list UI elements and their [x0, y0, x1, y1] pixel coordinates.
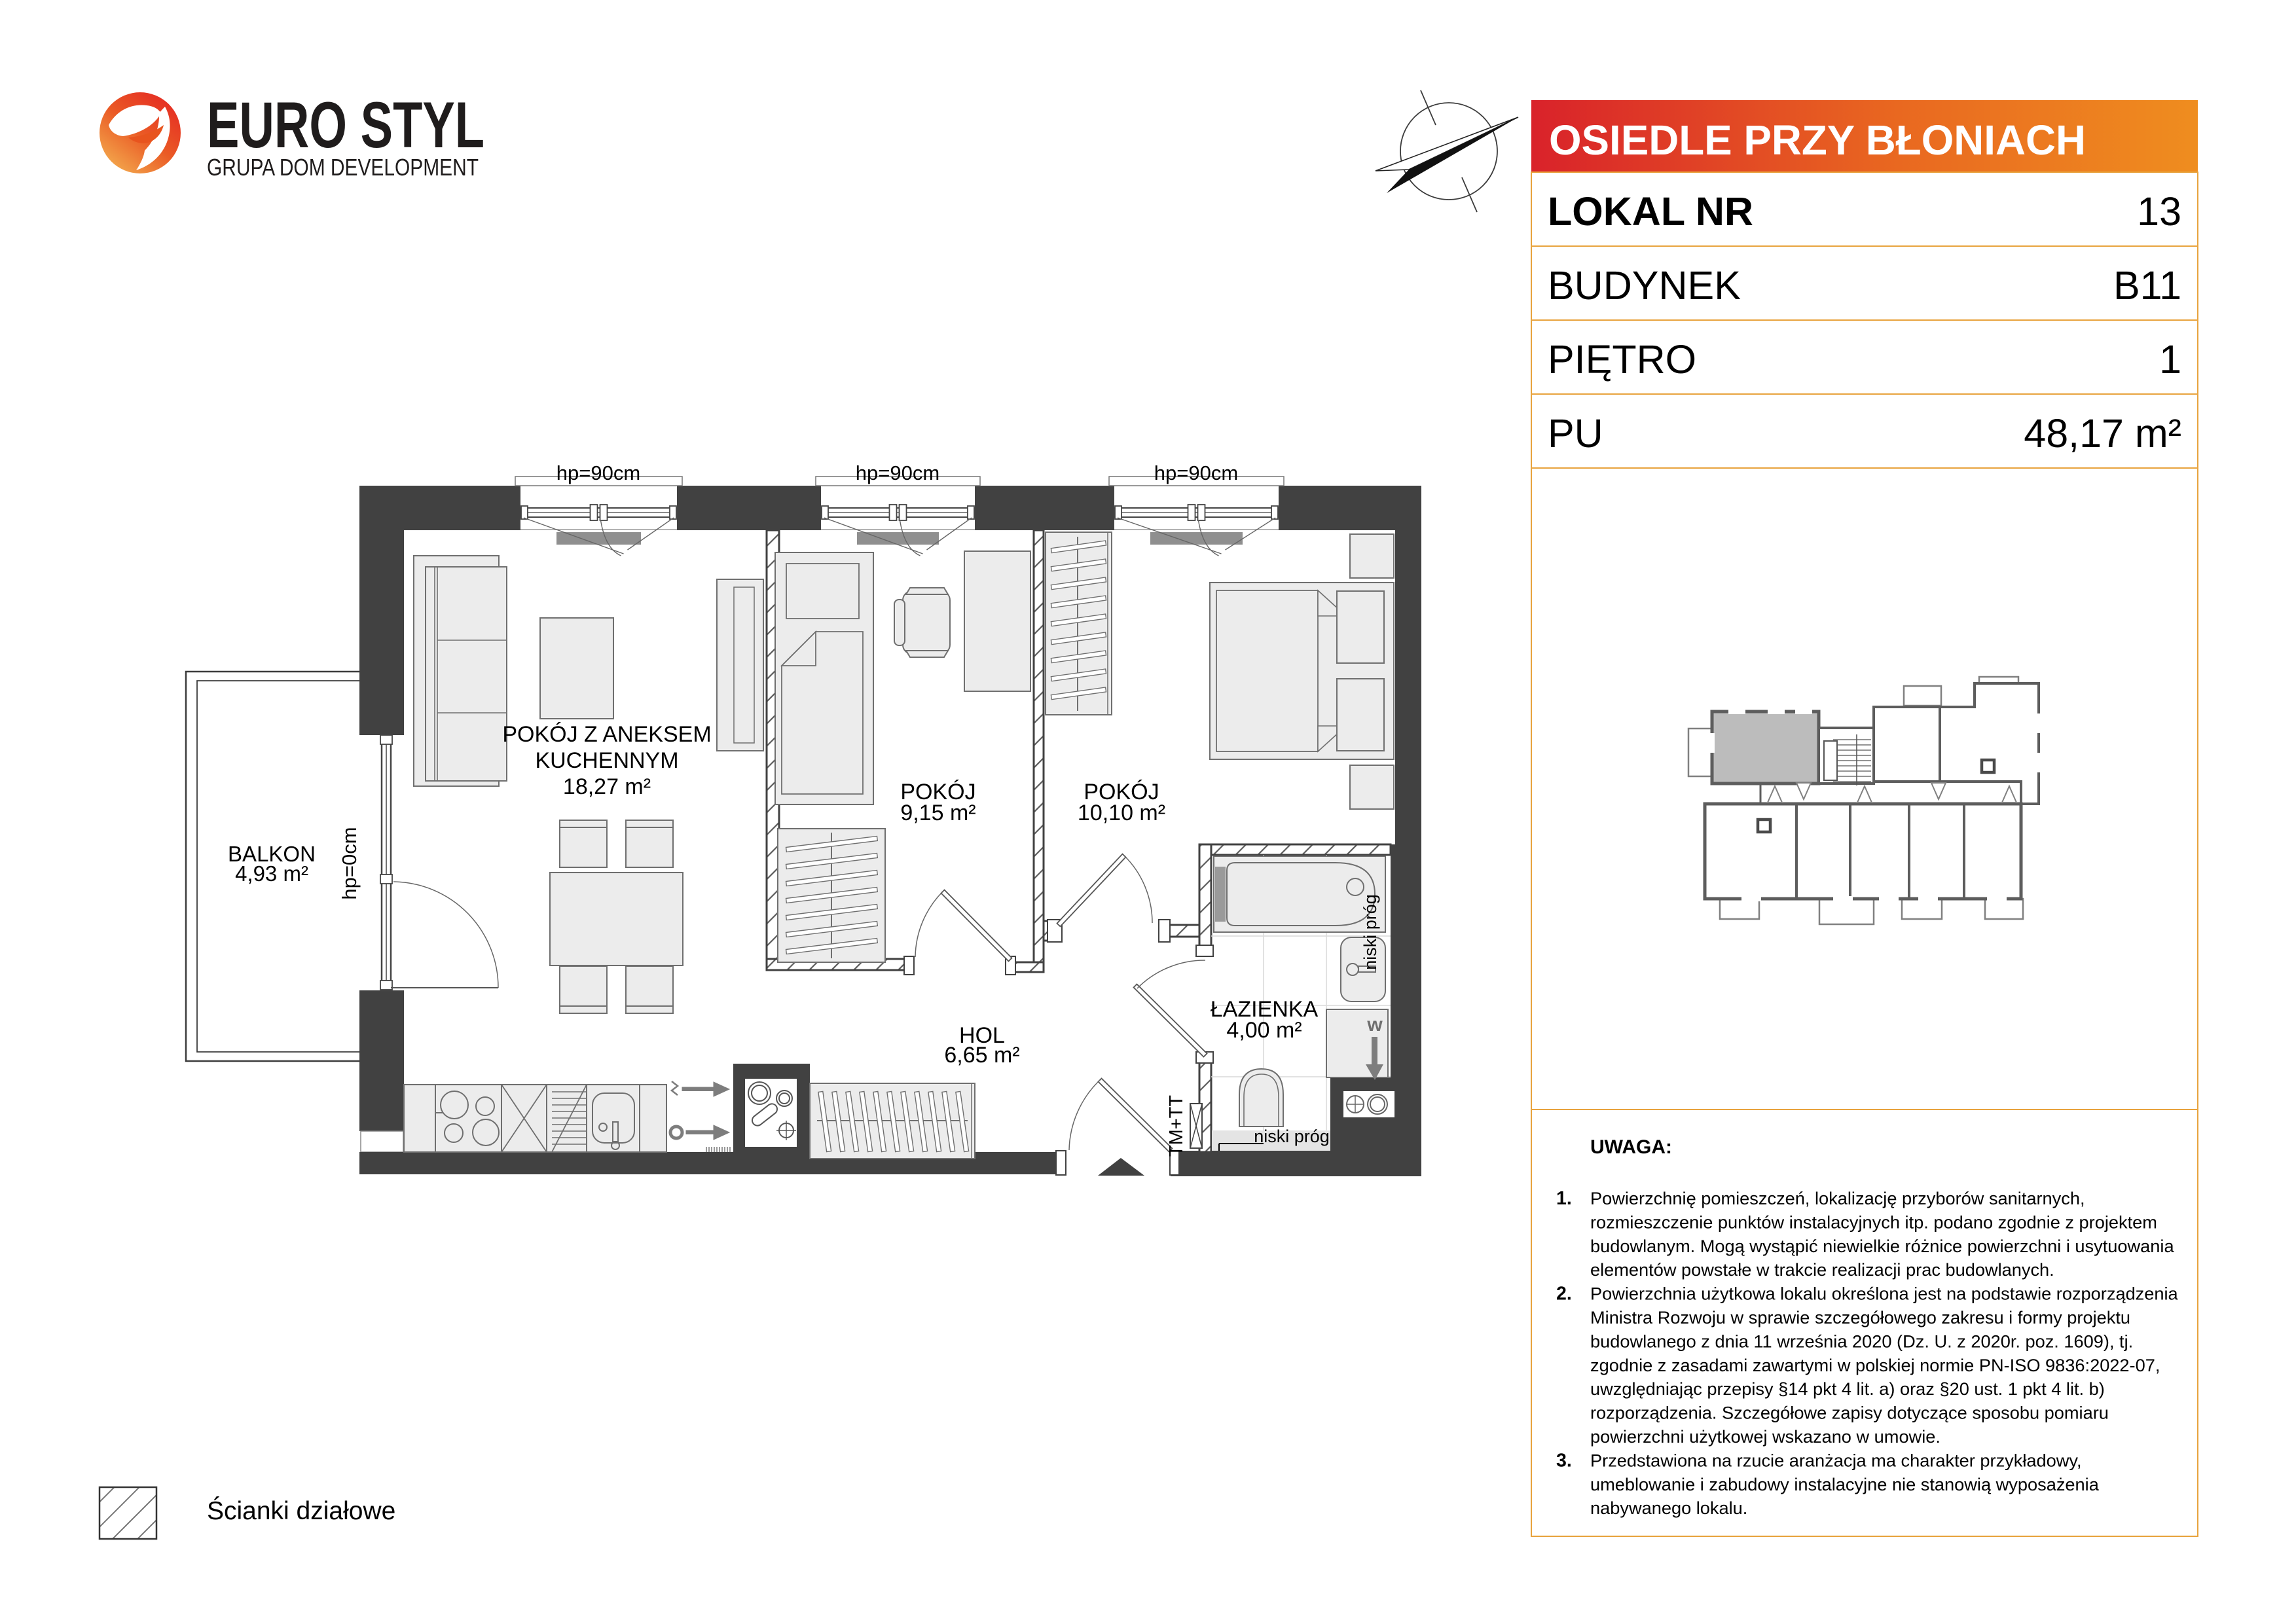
svg-text:hp=0cm: hp=0cm — [338, 827, 361, 899]
svg-text:Ministra Rozwoju w sprawie szc: Ministra Rozwoju w sprawie szczegółowego… — [1590, 1307, 2130, 1327]
svg-text:Powierzchnię pomieszczeń, loka: Powierzchnię pomieszczeń, lokalizację pr… — [1590, 1188, 2085, 1208]
svg-text:1: 1 — [2159, 337, 2181, 382]
svg-text:rozporządzenia. Szczegółowe za: rozporządzenia. Szczegółowe zapisy dotyc… — [1590, 1403, 2109, 1423]
svg-text:GRUPA DOM DEVELOPMENT: GRUPA DOM DEVELOPMENT — [207, 154, 479, 181]
svg-text:elementów powstałe w trakcie r: elementów powstałe w trakcie realizacji … — [1590, 1259, 2054, 1280]
svg-text:umeblowanie i zabudowy instala: umeblowanie i zabudowy instalacyjne nie … — [1590, 1474, 2100, 1494]
svg-text:LOKAL NR: LOKAL NR — [1548, 189, 1753, 234]
svg-text:nabywanego lokalu.: nabywanego lokalu. — [1590, 1498, 1747, 1518]
svg-text:POKÓJ Z ANEKSEM: POKÓJ Z ANEKSEM — [502, 722, 711, 747]
svg-text:powierzchni użytkowej wskazano: powierzchni użytkowej wskazano w umowie. — [1590, 1426, 1941, 1447]
svg-text:4,00 m²: 4,00 m² — [1226, 1018, 1302, 1043]
svg-text:KUCHENNYM: KUCHENNYM — [535, 748, 678, 773]
svg-text:w: w — [1366, 1014, 1383, 1036]
svg-text:2.: 2. — [1556, 1284, 1572, 1305]
svg-text:UWAGA:: UWAGA: — [1590, 1136, 1672, 1158]
svg-text:budowlanego z dnia 11 września: budowlanego z dnia 11 września 2020 (Dz.… — [1590, 1331, 2133, 1351]
svg-text:Powierzchnia użytkowa lokalu o: Powierzchnia użytkowa lokalu określona j… — [1590, 1284, 2179, 1304]
svg-text:9,15 m²: 9,15 m² — [900, 801, 975, 825]
svg-text:TM+TT: TM+TT — [1166, 1095, 1187, 1157]
svg-text:B11: B11 — [2113, 263, 2181, 308]
svg-text:Ścianki działowe: Ścianki działowe — [207, 1496, 395, 1525]
svg-text:niski próg: niski próg — [1360, 894, 1380, 970]
svg-text:EURO STYL: EURO STYL — [207, 88, 484, 161]
svg-text:3.: 3. — [1556, 1450, 1572, 1471]
svg-text:10,10 m²: 10,10 m² — [1078, 801, 1165, 825]
svg-text:budowlanym. Mogą wystąpić niew: budowlanym. Mogą wystąpić niewielkie róż… — [1590, 1236, 2174, 1256]
svg-text:rozmieszczenie punktów instala: rozmieszczenie punktów instalacyjnych it… — [1590, 1212, 2157, 1232]
svg-text:zgodnie z zasadami zawartymi w: zgodnie z zasadami zawartymi w polskiej … — [1590, 1355, 2160, 1375]
svg-text:48,17 m²: 48,17 m² — [2024, 411, 2181, 456]
svg-text:13: 13 — [2137, 189, 2181, 234]
svg-text:uwzględniając przepisy §14 pkt: uwzględniając przepisy §14 pkt 4 lit. a)… — [1590, 1379, 2105, 1399]
svg-text:hp=90cm: hp=90cm — [556, 461, 640, 484]
svg-text:6,65 m²: 6,65 m² — [944, 1043, 1019, 1068]
svg-text:hp=90cm: hp=90cm — [856, 461, 939, 484]
svg-text:PU: PU — [1548, 411, 1603, 456]
svg-text:BUDYNEK: BUDYNEK — [1548, 263, 1741, 308]
svg-text:Przedstawiona na rzucie aranża: Przedstawiona na rzucie aranżacja ma cha… — [1590, 1450, 2082, 1470]
svg-text:hp=90cm: hp=90cm — [1154, 461, 1238, 484]
svg-text:18,27 m²: 18,27 m² — [563, 774, 651, 799]
svg-text:1.: 1. — [1556, 1188, 1572, 1209]
svg-text:PIĘTRO: PIĘTRO — [1548, 337, 1696, 382]
svg-text:niski próg: niski próg — [1254, 1127, 1330, 1146]
svg-text:4,93 m²: 4,93 m² — [235, 861, 308, 886]
svg-text:OSIEDLE PRZY BŁONIACH: OSIEDLE PRZY BŁONIACH — [1549, 117, 2086, 164]
